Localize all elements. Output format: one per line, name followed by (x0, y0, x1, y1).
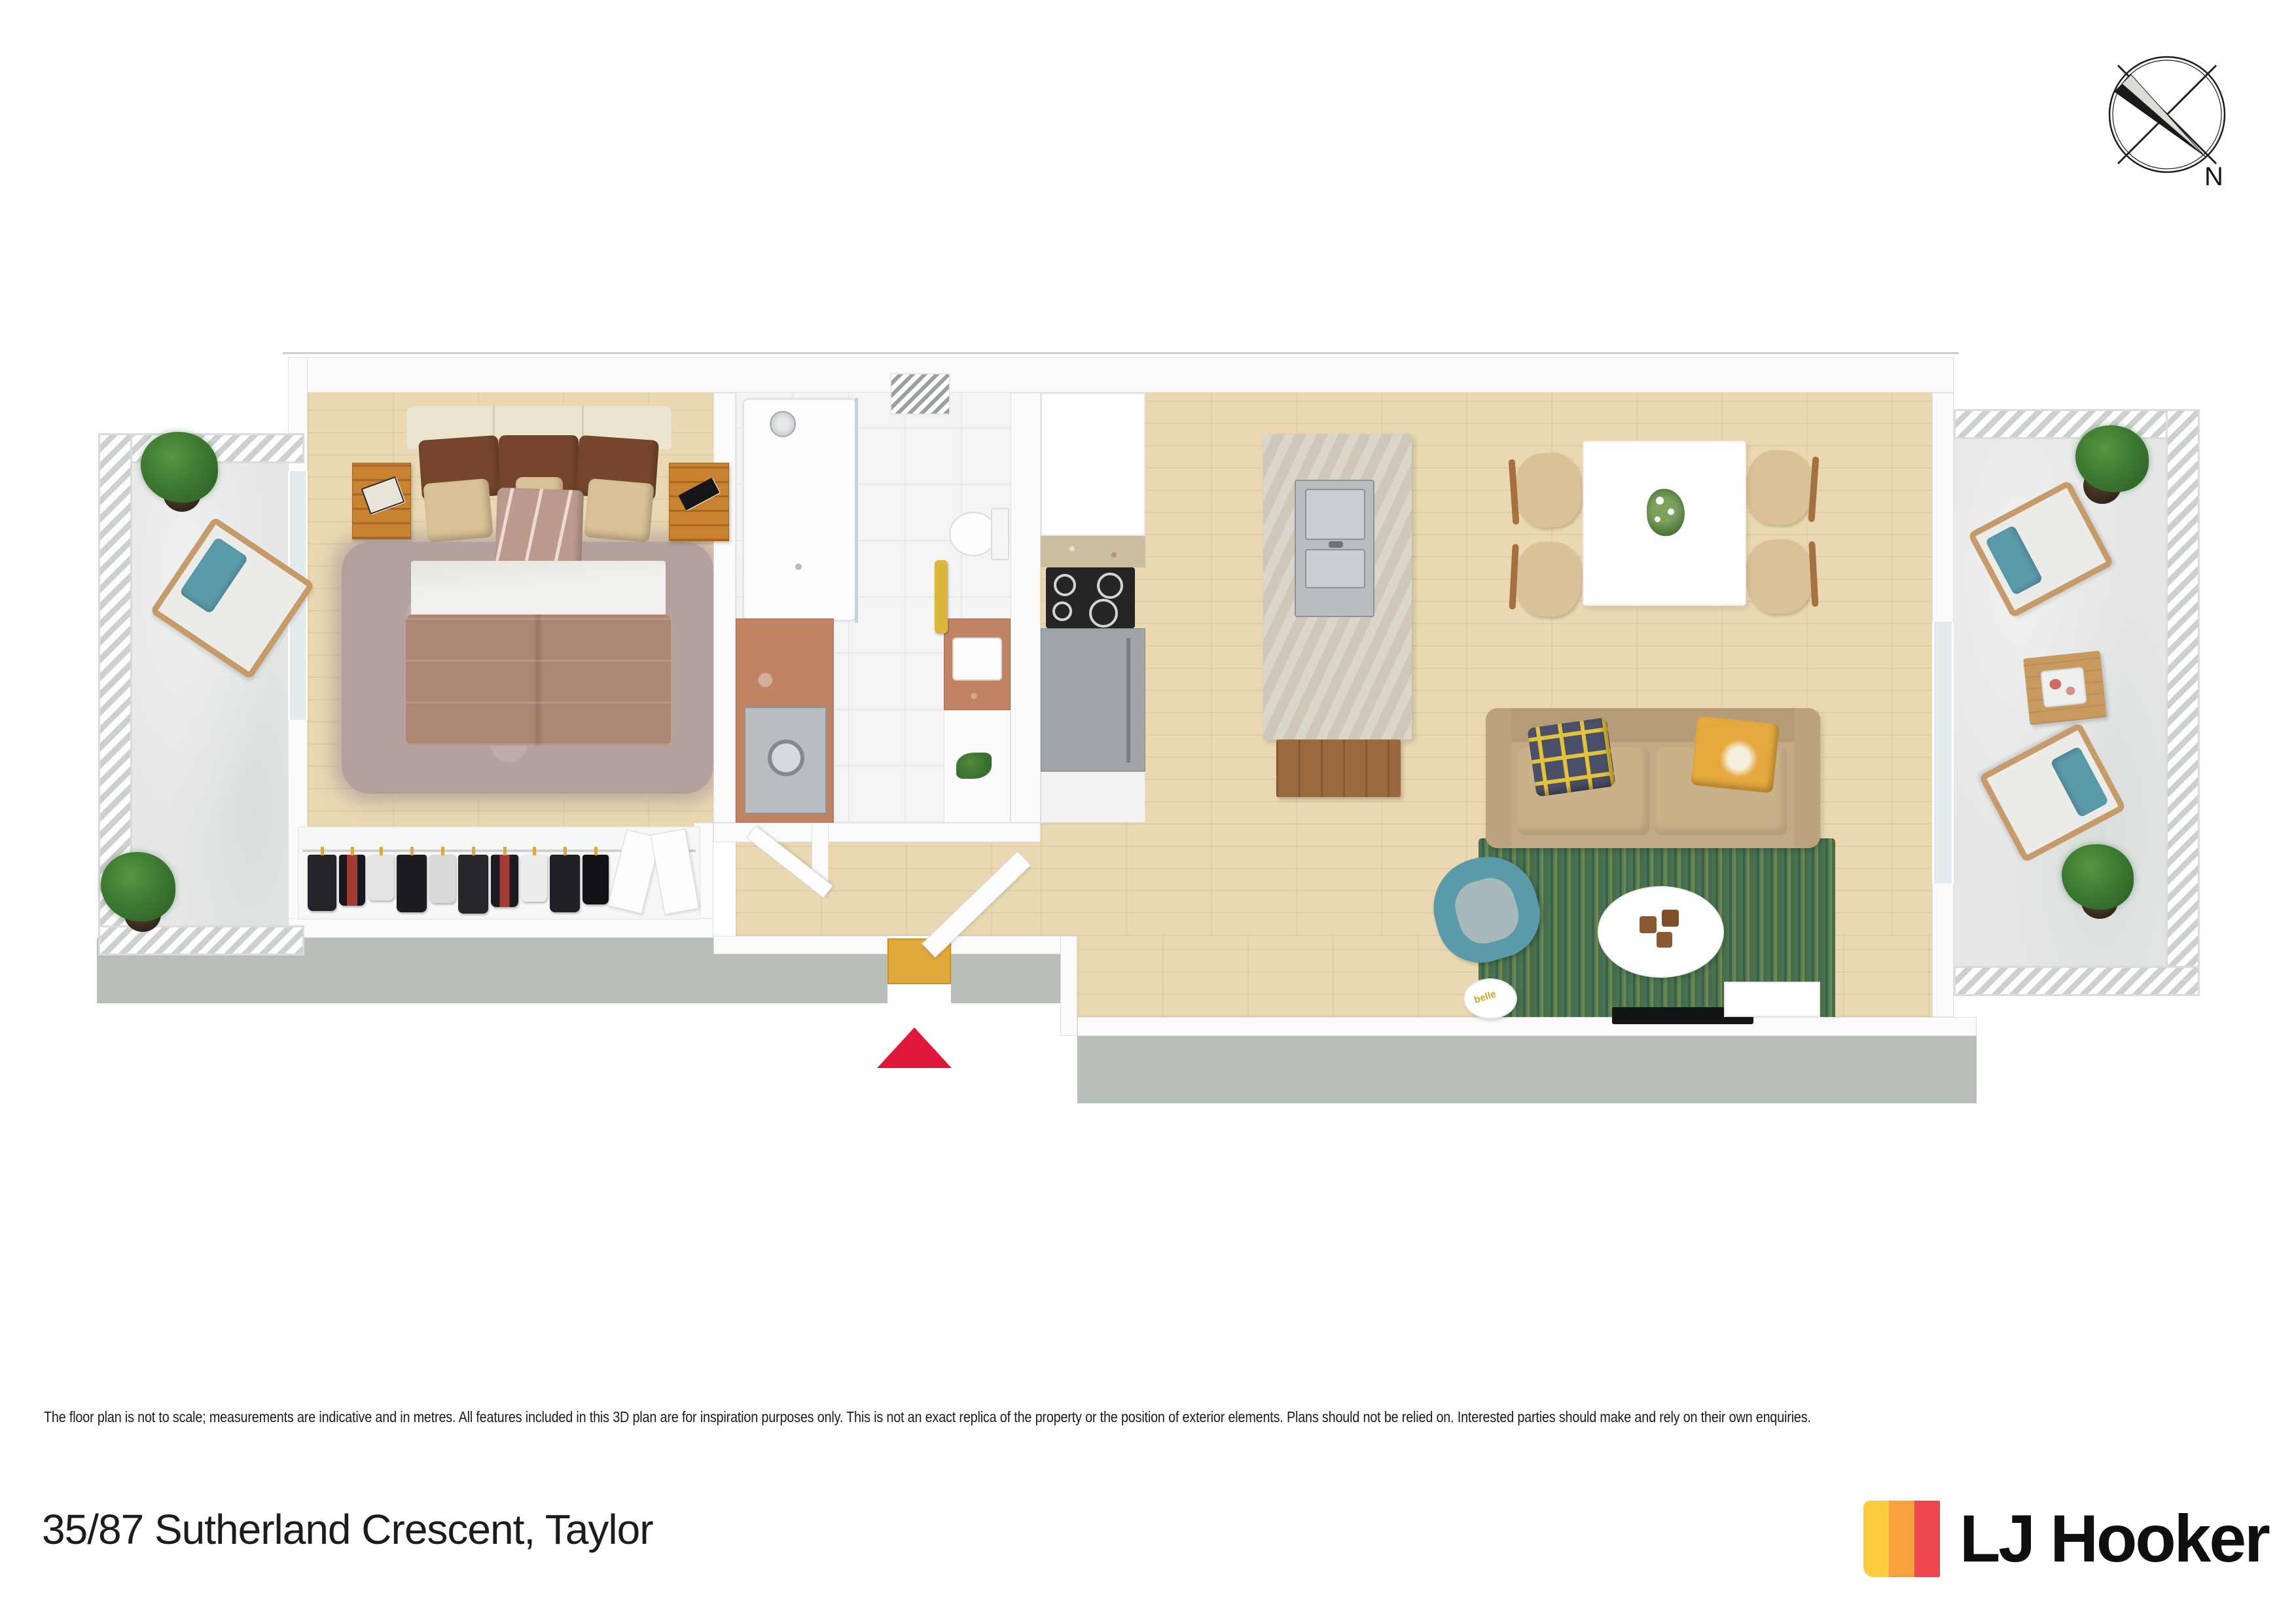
book (361, 476, 405, 515)
pillow-striped (495, 488, 584, 572)
flower (1668, 508, 1674, 515)
entry-wall-right (951, 936, 1077, 954)
shower-tray (742, 398, 857, 622)
plant-leaf (956, 753, 992, 779)
floorplan-page: N (0, 0, 2296, 1623)
pillow-tan (584, 478, 654, 543)
hanging-garment (550, 855, 580, 912)
agency-logo: LJ Hooker (1863, 1500, 2269, 1577)
washing-machine (744, 707, 827, 814)
potted-plant (98, 851, 183, 936)
logo-stripe-orange (1889, 1501, 1914, 1577)
hanging-garment (339, 855, 365, 906)
table-planter (1662, 910, 1679, 927)
bed (406, 405, 671, 745)
yellow-towel (935, 560, 948, 633)
hanging-garment (429, 855, 456, 903)
hanging-garment (521, 855, 547, 902)
top-parapet-line (283, 352, 1959, 354)
compass-north-label: N (2204, 162, 2223, 192)
dining-chair (1744, 537, 1814, 615)
pillow-navy-crosses (1527, 717, 1616, 797)
agency-name: LJ Hooker (1960, 1501, 2269, 1577)
table-flowers (1647, 489, 1685, 536)
table-planter (1657, 932, 1672, 948)
cabinet-handle (1126, 638, 1130, 762)
dining-chair (1514, 540, 1583, 618)
logo-stripe-red (1914, 1501, 1940, 1577)
logo-stripe-yellow (1863, 1501, 1889, 1577)
hanging-garment (458, 855, 488, 914)
vanity-sink (952, 637, 1002, 681)
book (678, 478, 719, 510)
plant-foliage (2062, 844, 2134, 910)
burner (1089, 599, 1118, 628)
bedroom-bathroom-wall (713, 393, 736, 823)
toilet-tank (991, 508, 1009, 560)
hanging-garment (368, 855, 394, 901)
shower-head (770, 411, 796, 437)
flower (1655, 516, 1660, 522)
step-wall (1060, 936, 1077, 1036)
pillow-tan (423, 478, 493, 543)
cooktop (1046, 567, 1135, 628)
bathroom-kitchen-wall (1011, 393, 1041, 823)
outdoor-coffee-table (2023, 651, 2107, 725)
entry-direction-arrow (877, 1027, 952, 1068)
living-south-wall (1077, 1017, 1977, 1036)
burner (1052, 601, 1072, 621)
armchair-cushion (1449, 872, 1524, 950)
nightstand-left (352, 463, 411, 539)
magazine-title: belle (1473, 988, 1498, 1006)
sink-basin (1305, 549, 1365, 588)
island-sink (1295, 480, 1374, 617)
kitchen-tall-cabinet (1041, 393, 1145, 536)
compass-rose: N (2105, 52, 2240, 200)
shower-drain (795, 563, 802, 570)
wardrobe-door (651, 829, 700, 914)
washing-machine-door (768, 740, 804, 776)
vanity-cabinet (944, 710, 1011, 823)
sofa-armrest (1486, 708, 1512, 848)
dining-table (1583, 440, 1746, 606)
living-balcony-slider-glass (1932, 622, 1954, 883)
bedroom-south-wall (288, 918, 713, 938)
sofa (1486, 708, 1820, 848)
entry-wall-left (713, 936, 888, 954)
island-wood-base (1276, 740, 1401, 797)
hanging-garment (491, 855, 518, 907)
sink-basin (1305, 489, 1365, 540)
nightstand-right (669, 463, 729, 541)
kitchen-base-cabinet (1041, 628, 1145, 772)
bed-duvet (406, 615, 671, 745)
coffee-table (1598, 886, 1724, 978)
shower-glass-panel (855, 398, 858, 623)
kitchen-counter (1041, 536, 1145, 567)
tray-food (2049, 679, 2062, 690)
potted-plant (2072, 425, 2153, 507)
kitchen-base-end (1041, 772, 1145, 823)
hanging-garment (583, 855, 609, 904)
dining-chair (1513, 451, 1584, 530)
property-address: 35/87 Sutherland Crescent, Taylor (42, 1505, 653, 1554)
potted-plant (141, 432, 226, 517)
potted-plant (2062, 844, 2140, 923)
burner (1054, 574, 1076, 596)
exterior-wall-face-living (1077, 1036, 1977, 1103)
serving-tray (2040, 667, 2087, 708)
bathroom-vanity (944, 618, 1011, 710)
plant-foliage (101, 852, 175, 921)
hanging-garment (308, 855, 336, 911)
disclaimer-text: The floor plan is not to scale; measurem… (44, 1408, 1811, 1426)
laundry-bench (736, 618, 834, 823)
pillow-yellow-floral (1691, 716, 1780, 794)
sofa-armrest (1794, 708, 1820, 848)
right-balcony-rail-bottom (1954, 966, 2200, 996)
toilet-bowl (949, 512, 997, 556)
chevron-towel (890, 373, 950, 415)
side-table: belle (1463, 978, 1517, 1019)
burner (1097, 573, 1123, 599)
tv-unit (1724, 982, 1820, 1017)
tray-food (2066, 686, 2075, 695)
built-in-wardrobe (298, 827, 700, 919)
lj-hooker-stripes-icon (1863, 1501, 1940, 1577)
flower (1656, 497, 1664, 505)
table-planter (1640, 916, 1657, 933)
sink-faucet (1329, 541, 1343, 548)
kitchen-island (1263, 434, 1412, 740)
right-balcony-rail-right (2166, 409, 2200, 996)
plant-foliage (141, 432, 218, 503)
hanging-garment (397, 855, 427, 912)
north-wall (288, 357, 1954, 393)
